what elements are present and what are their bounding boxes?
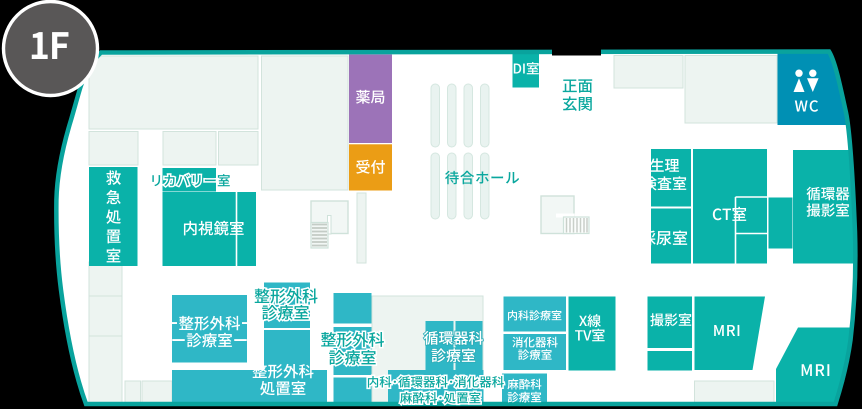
svg-text:MRI: MRI [713, 320, 741, 341]
svg-text:診療室: 診療室 [328, 345, 376, 369]
svg-text:撮影室: 撮影室 [650, 310, 692, 330]
svg-text:撮影室: 撮影室 [806, 200, 850, 221]
svg-text:診療室: 診療室 [261, 300, 309, 324]
svg-text:CT室: CT室 [712, 203, 747, 225]
svg-text:内視鏡室: 内視鏡室 [182, 217, 244, 239]
svg-text:診療室: 診療室 [507, 390, 542, 406]
svg-text:処置室: 処置室 [260, 377, 307, 399]
svg-text:MRI: MRI [800, 357, 832, 381]
svg-text:内科診療室: 内科診療室 [507, 308, 562, 324]
svg-text:採尿室: 採尿室 [640, 225, 688, 249]
svg-text:薬局: 薬局 [355, 87, 385, 108]
svg-text:リカバリー室: リカバリー室 [150, 170, 231, 190]
svg-text:救急処置室: 救急処置室 [106, 167, 122, 267]
svg-text:TV室: TV室 [575, 326, 606, 346]
svg-text:1F: 1F [29, 19, 69, 70]
svg-text:麻酔科･処置室: 麻酔科･処置室 [400, 388, 481, 407]
svg-text:WC: WC [794, 96, 819, 117]
svg-text:ー診療室ー: ー診療室ー [171, 329, 249, 351]
svg-text:待合ホール: 待合ホール [445, 167, 521, 188]
svg-text:検査室: 検査室 [642, 173, 687, 194]
svg-text:診療室: 診療室 [518, 347, 553, 363]
svg-text:診療室: 診療室 [431, 345, 476, 366]
svg-text:玄関: 玄関 [562, 93, 593, 115]
svg-text:受付: 受付 [355, 157, 385, 178]
svg-text:DI室: DI室 [512, 58, 539, 78]
